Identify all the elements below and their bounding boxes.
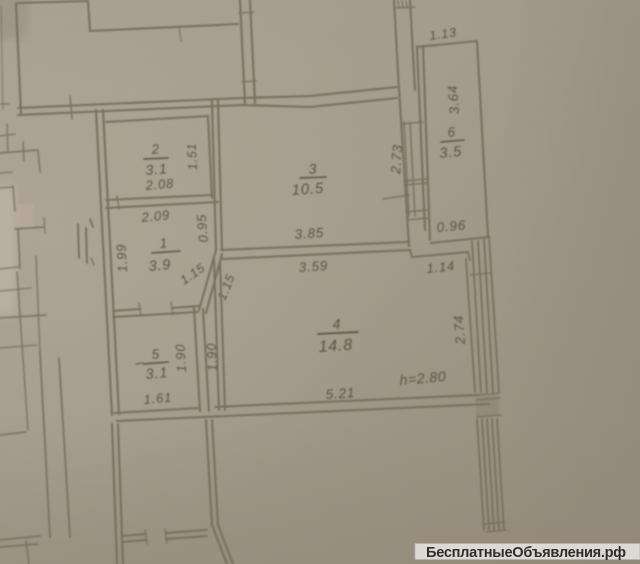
svg-text:6: 6: [447, 124, 457, 140]
svg-text:1.90: 1.90: [173, 343, 189, 372]
svg-text:2.73: 2.73: [388, 144, 405, 175]
svg-text:3.9: 3.9: [148, 257, 172, 275]
svg-text:БесплатныеОбъявления.рф: БесплатныеОбъявления.рф: [426, 545, 626, 561]
svg-text:1: 1: [159, 235, 168, 251]
svg-text:1.99: 1.99: [114, 243, 130, 272]
svg-text:3.5: 3.5: [439, 144, 463, 162]
svg-text:14.8: 14.8: [318, 337, 353, 356]
svg-text:3: 3: [308, 160, 317, 177]
svg-text:10.5: 10.5: [291, 180, 325, 199]
svg-text:1.14: 1.14: [426, 258, 456, 276]
svg-text:3.85: 3.85: [294, 225, 324, 242]
svg-text:0.95: 0.95: [194, 213, 211, 243]
svg-text:3.1: 3.1: [145, 365, 169, 383]
svg-text:2: 2: [150, 141, 160, 157]
svg-text:1.61: 1.61: [143, 390, 173, 407]
svg-text:4: 4: [332, 315, 341, 332]
svg-text:3.64: 3.64: [445, 84, 462, 114]
svg-text:0.96: 0.96: [436, 217, 467, 235]
svg-text:2.08: 2.08: [144, 176, 175, 194]
svg-text:3.59: 3.59: [298, 258, 328, 275]
svg-text:3.1: 3.1: [145, 160, 168, 178]
svg-text:5.21: 5.21: [325, 385, 355, 402]
svg-text:5: 5: [151, 346, 160, 362]
svg-text:2.09: 2.09: [140, 207, 171, 225]
svg-text:1.51: 1.51: [185, 142, 200, 170]
svg-text:2.74: 2.74: [451, 314, 468, 345]
